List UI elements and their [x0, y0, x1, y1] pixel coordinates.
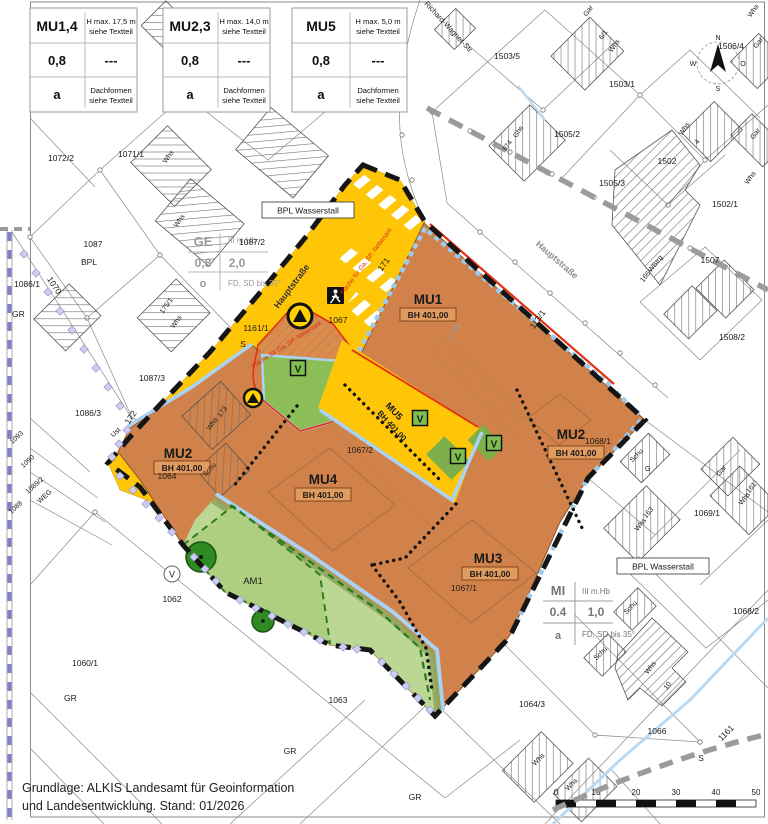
legend-block-mu14: MU1,4 H max. 17,5 m siehe Textteil 0,8 -…	[30, 8, 137, 112]
svg-text:W: W	[690, 61, 697, 68]
svg-text:H max. 14,0 m: H max. 14,0 m	[219, 17, 268, 26]
svg-text:1505/3: 1505/3	[599, 178, 625, 188]
svg-text:1161: 1161	[716, 723, 736, 743]
zone-label-mu1: MU1	[414, 292, 443, 307]
svg-text:30: 30	[672, 788, 681, 797]
svg-text:WEG: WEG	[36, 489, 53, 505]
svg-text:MU2,3: MU2,3	[169, 18, 210, 34]
legend-blocks: MU1,4 H max. 17,5 m siehe Textteil 0,8 -…	[30, 8, 407, 112]
svg-text:a: a	[555, 630, 562, 642]
svg-text:1087: 1087	[84, 239, 103, 249]
svg-text:1071/1: 1071/1	[118, 149, 144, 159]
zoning-plan-map: V V V V V 010 2030 4050 N W S O	[0, 0, 768, 824]
svg-text:Dachformen: Dachformen	[90, 86, 131, 95]
svg-text:V: V	[295, 365, 302, 376]
street-hauptstrasse-2: Hauptstraße	[534, 239, 580, 281]
svg-text:MU5: MU5	[306, 18, 336, 34]
zone-label-mu3: MU3	[474, 551, 503, 566]
svg-text:1060/1: 1060/1	[72, 658, 98, 668]
svg-text:MU1,4: MU1,4	[36, 18, 77, 34]
svg-text:BH 401,00: BH 401,00	[556, 448, 597, 458]
zone-label-mu2r: MU2	[557, 427, 586, 442]
svg-text:0,8: 0,8	[312, 53, 330, 68]
zone-label-am1: AM1	[243, 576, 263, 587]
v-circle: V	[164, 566, 180, 582]
svg-text:GR: GR	[12, 309, 25, 319]
svg-text:Gar: Gar	[583, 4, 596, 18]
svg-text:1503/5: 1503/5	[494, 51, 520, 61]
svg-text:siehe Textteil: siehe Textteil	[356, 27, 400, 36]
bh-box-mu3: BH 401,00	[462, 567, 518, 580]
svg-text:S: S	[240, 339, 246, 349]
svg-text:1161/1: 1161/1	[243, 323, 269, 333]
svg-text:BPL Wasserstall: BPL Wasserstall	[632, 562, 694, 572]
svg-text:BPL Wasserstall: BPL Wasserstall	[277, 206, 339, 216]
svg-text:0,8: 0,8	[181, 53, 199, 68]
svg-text:1067/2: 1067/2	[347, 445, 373, 455]
svg-text:BH 401,00: BH 401,00	[470, 569, 511, 579]
svg-text:1503/1: 1503/1	[609, 79, 635, 89]
ge-table: GE III m.Hb 0,8 2,0 o FD, SD bis 35°	[188, 233, 281, 290]
svg-text:1067: 1067	[329, 315, 348, 325]
svg-text:FD, SD bis 35°: FD, SD bis 35°	[228, 279, 281, 288]
svg-text:V: V	[417, 415, 424, 426]
svg-text:1,0: 1,0	[588, 605, 605, 619]
bpl-label-2: BPL Wasserstall	[617, 558, 709, 574]
v-box-3: V	[487, 436, 502, 451]
svg-text:S: S	[698, 753, 704, 763]
svg-text:1069/1: 1069/1	[694, 508, 720, 518]
attribution-line-1: Grundlage: ALKIS Landesamt für Geoinform…	[22, 781, 294, 795]
bh-box-mu1: BH 401,00	[400, 308, 456, 321]
svg-text:Ust: Ust	[110, 427, 123, 439]
svg-text:1502/1: 1502/1	[712, 199, 738, 209]
svg-text:Whs: Whs	[747, 3, 761, 19]
svg-text:III m.Hb: III m.Hb	[582, 587, 611, 596]
v-box-4: V	[291, 361, 306, 376]
svg-text:1090: 1090	[20, 454, 36, 470]
svg-text:MI: MI	[551, 583, 565, 598]
svg-text:a: a	[53, 87, 61, 102]
svg-text:20: 20	[632, 788, 641, 797]
svg-text:G: G	[645, 466, 650, 473]
svg-text:1068/2: 1068/2	[733, 606, 759, 616]
zoning-plan-page: V V V V V 010 2030 4050 N W S O	[0, 0, 768, 824]
svg-text:a: a	[186, 87, 194, 102]
svg-text:0,8: 0,8	[48, 53, 66, 68]
svg-text:siehe Textteil: siehe Textteil	[356, 96, 400, 105]
svg-text:1064/3: 1064/3	[519, 699, 545, 709]
svg-text:1087/2: 1087/2	[239, 237, 265, 247]
svg-text:O: O	[740, 61, 746, 68]
svg-text:1086/1: 1086/1	[14, 279, 40, 289]
svg-text:1508/2: 1508/2	[719, 332, 745, 342]
svg-text:1502: 1502	[658, 156, 677, 166]
bh-box-mu2r: BH 401,00	[548, 446, 604, 459]
svg-text:siehe Textteil: siehe Textteil	[222, 27, 266, 36]
v-box-2: V	[451, 449, 466, 464]
svg-text:---: ---	[238, 53, 251, 68]
svg-text:BH 401,00: BH 401,00	[408, 310, 449, 320]
svg-text:H max. 5,0 m: H max. 5,0 m	[355, 17, 400, 26]
svg-text:1086/3: 1086/3	[75, 408, 101, 418]
signal-icon-1	[288, 304, 312, 328]
svg-text:0: 0	[554, 788, 559, 797]
svg-text:S: S	[716, 86, 721, 93]
svg-text:siehe Textteil: siehe Textteil	[89, 27, 133, 36]
svg-text:---: ---	[372, 53, 385, 68]
svg-text:V: V	[169, 570, 175, 580]
svg-text:1505/2: 1505/2	[554, 129, 580, 139]
svg-text:Whs: Whs	[744, 170, 758, 186]
svg-text:GR: GR	[409, 792, 422, 802]
zone-label-mu4: MU4	[309, 472, 338, 487]
svg-text:V: V	[491, 440, 498, 451]
svg-text:1067/1: 1067/1	[451, 583, 477, 593]
svg-text:o: o	[200, 278, 207, 290]
svg-text:0.4: 0.4	[550, 605, 567, 619]
svg-text:2,0: 2,0	[229, 256, 246, 270]
bpl-label-1: BPL Wasserstall	[262, 202, 354, 218]
svg-text:0,8: 0,8	[195, 256, 212, 270]
svg-text:1062: 1062	[163, 594, 182, 604]
svg-text:1089/2: 1089/2	[25, 476, 46, 496]
svg-text:Dachformen: Dachformen	[223, 86, 264, 95]
signal-icon-2	[244, 389, 262, 407]
svg-text:siehe Textteil: siehe Textteil	[222, 96, 266, 105]
svg-text:GE: GE	[194, 234, 213, 249]
svg-text:GR: GR	[284, 746, 297, 756]
svg-text:siehe Textteil: siehe Textteil	[89, 96, 133, 105]
svg-text:a: a	[317, 87, 325, 102]
svg-text:50: 50	[752, 788, 761, 797]
svg-text:1507: 1507	[701, 255, 720, 265]
zone-label-mu2l: MU2	[164, 446, 193, 461]
svg-text:1072/2: 1072/2	[48, 153, 74, 163]
legend-block-mu5: MU5 H max. 5,0 m siehe Textteil 0,8 --- …	[292, 8, 407, 112]
svg-text:1068/1: 1068/1	[585, 436, 611, 446]
attribution-line-2: und Landesentwicklung. Stand: 01/2026	[22, 799, 244, 813]
svg-text:1063: 1063	[329, 695, 348, 705]
svg-text:1506/4: 1506/4	[718, 41, 744, 51]
svg-text:1066: 1066	[648, 726, 667, 736]
svg-text:1064: 1064	[158, 471, 177, 481]
svg-text:40: 40	[712, 788, 721, 797]
svg-text:BPL: BPL	[81, 257, 97, 267]
v-box-1: V	[413, 411, 428, 426]
svg-text:FD, SD bis 35°: FD, SD bis 35°	[582, 630, 635, 639]
bh-box-mu4: BH 401,00	[295, 488, 351, 501]
svg-text:1087/3: 1087/3	[139, 373, 165, 383]
svg-text:---: ---	[105, 53, 118, 68]
svg-text:H max. 17,5 m: H max. 17,5 m	[86, 17, 135, 26]
svg-text:Dachformen: Dachformen	[357, 86, 398, 95]
svg-text:V: V	[455, 453, 462, 464]
svg-text:BH 401,00: BH 401,00	[303, 490, 344, 500]
legend-block-mu23: MU2,3 H max. 14,0 m siehe Textteil 0,8 -…	[163, 8, 270, 112]
svg-text:GR: GR	[64, 693, 77, 703]
